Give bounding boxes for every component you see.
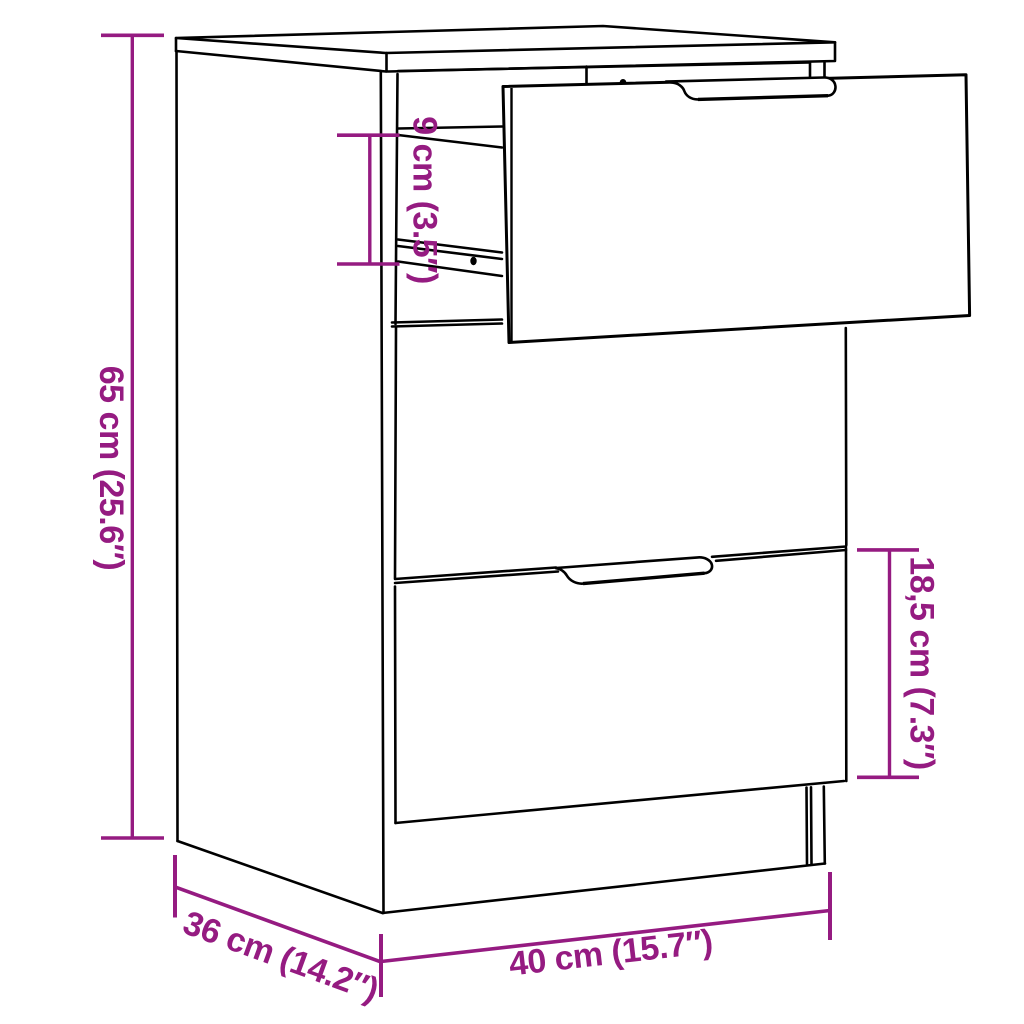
svg-text:18,5 cm (7.3″): 18,5 cm (7.3″) — [903, 556, 941, 769]
svg-text:9 cm (3.5″): 9 cm (3.5″) — [406, 116, 444, 284]
svg-text:65 cm (25.6″): 65 cm (25.6″) — [92, 366, 130, 570]
